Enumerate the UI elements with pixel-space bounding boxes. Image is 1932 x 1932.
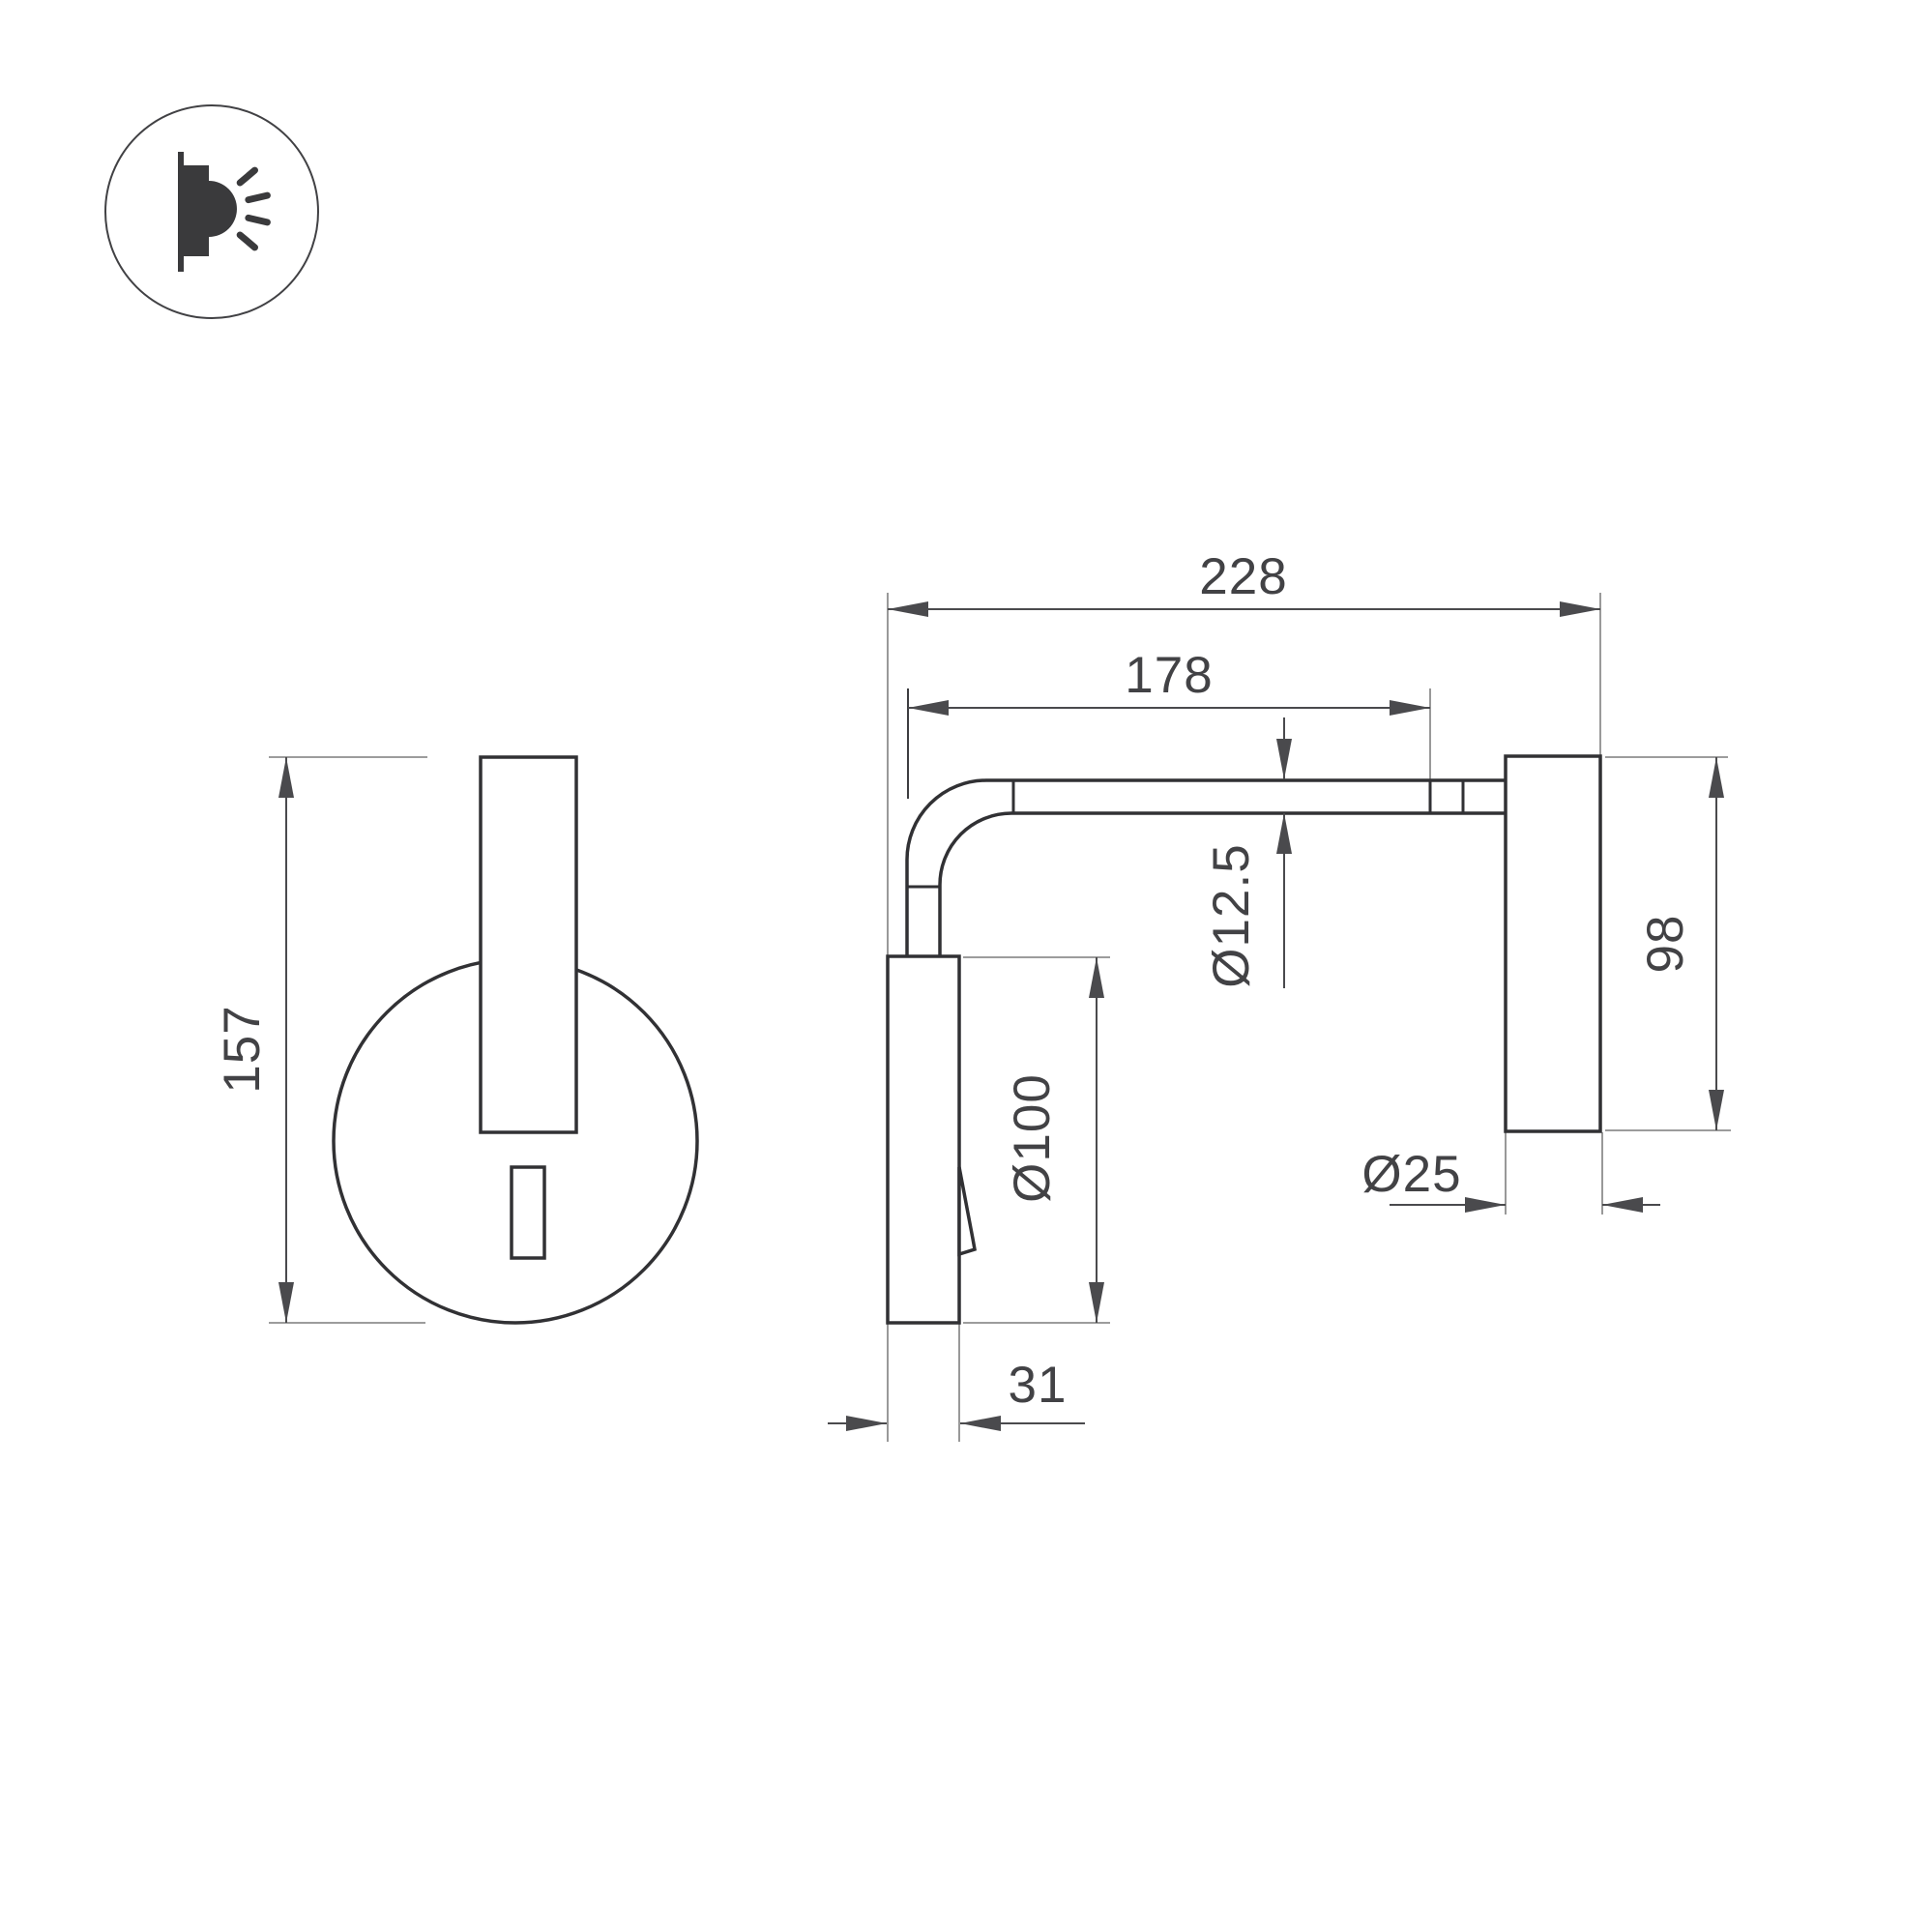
arrowhead-up [278,757,294,798]
arrowhead-down [278,1282,294,1323]
dimension-12-5: Ø12.5 [1203,717,1292,988]
dimension-178: 178 [908,647,1430,716]
dim-label-12-5: Ø12.5 [1203,843,1260,987]
icon-light-rays [240,170,267,248]
dimension-98: 98 [1637,757,1724,1130]
side-view: 228 178 Ø12.5 Ø100 98 [828,548,1731,1442]
dim-label-157: 157 [214,1005,271,1093]
dimension-100: Ø100 [1004,957,1104,1323]
dim-label-178: 178 [1125,647,1213,704]
front-view: 157 [214,757,697,1323]
wall-light-icon [105,105,318,318]
dim-label-100: Ø100 [1004,1073,1061,1203]
lamp-body-front [481,757,576,1132]
lamp-head-side [1506,756,1600,1131]
dim-label-25: Ø25 [1361,1146,1461,1203]
drawing-page: 157 228 [0,0,1932,1932]
switch-lever-side [959,1167,975,1254]
icon-lamp-shade [209,181,237,237]
dimension-31: 31 [828,1357,1085,1431]
icon-lamp-base [183,165,209,256]
dimension-228: 228 [888,548,1600,617]
dim-label-98: 98 [1637,915,1694,974]
wall-cup-side [888,956,959,1323]
dimension-25: Ø25 [1361,1146,1660,1213]
dim-label-228: 228 [1199,548,1287,605]
technical-drawing: 157 228 [0,0,1932,1932]
switch-front [512,1167,544,1258]
dim-label-31: 31 [1009,1357,1068,1414]
